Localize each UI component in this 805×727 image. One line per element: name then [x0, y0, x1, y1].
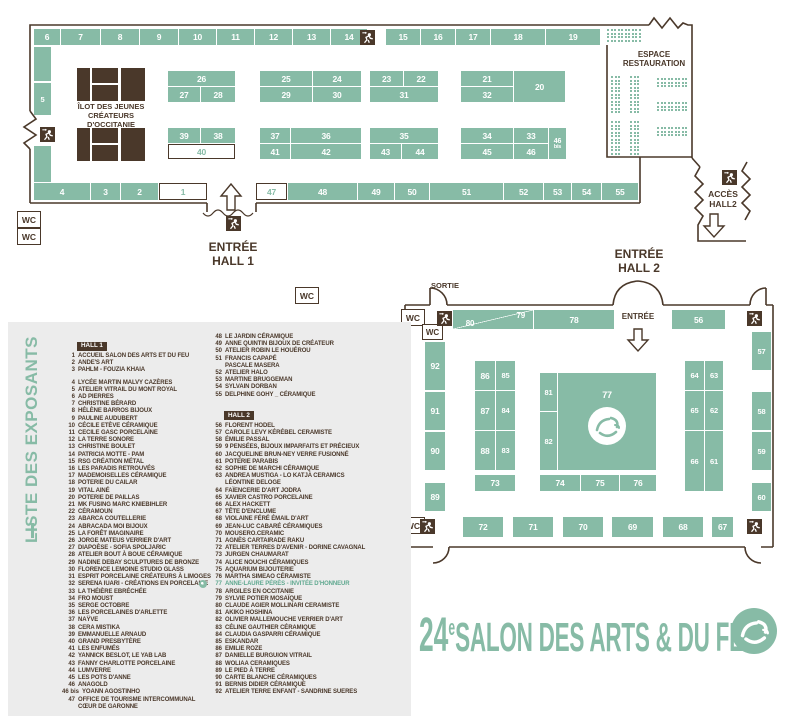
exhibitor-number: 38: [62, 625, 75, 632]
exhibitor-number: 59: [209, 444, 222, 451]
exhibitor-item-82: 82OLIVIER MALLEMOUCHE VERRIER D'ART: [209, 617, 409, 624]
exhibitor-number: 24: [62, 524, 75, 531]
edition-number: 24: [419, 609, 448, 662]
booth-33: 33: [514, 128, 548, 143]
booth-49: 49: [358, 183, 394, 200]
exhibitor-item: LÉONTINE DELOGE: [209, 480, 409, 487]
exhibitor-item-10: 10CÉCILE ETÈVE CÉRAMIQUE: [62, 423, 208, 430]
booth-18: 18: [491, 29, 545, 45]
booth-75: 75: [581, 475, 619, 491]
booth-42: 42: [291, 144, 361, 159]
exhibitor-name: ABARCA COUTELLERIE: [78, 516, 146, 523]
exhibitor-item-52: 52ATELIER HALO: [209, 370, 409, 377]
booth-47: 47: [256, 183, 287, 200]
exhibitor-name: YOANN AGOSTINHO: [82, 689, 140, 696]
exhibitor-number: 37: [62, 617, 75, 624]
exhibitor-number: 1: [62, 353, 75, 360]
exhibitor-name: ANDE'S ART: [78, 360, 113, 367]
exhibitor-number: 90: [209, 675, 222, 682]
exhibitor-number: [209, 363, 222, 370]
exhibitor-item-18: 18POTERIE DU CAILAR: [62, 480, 208, 487]
exhibitor-number: 3: [62, 367, 75, 374]
exhibitor-item-55: 55DELPHINE GOHY _ CÉRAMIQUE: [209, 392, 409, 399]
exhibitor-item-19: 19VITAL AINÉ: [62, 488, 208, 495]
exhibitor-name: EMILIE ROZE: [225, 646, 262, 653]
exhibitor-number: 28: [62, 552, 75, 559]
exhibitor-name: ATELIER TERRES D'AVENIR - DORINE CAVAGNA…: [225, 545, 365, 552]
exhibitor-number: 92: [209, 689, 222, 696]
exhibitor-item-9: 9PAULINE AUDUBERT: [62, 416, 208, 423]
exhibitor-name: LE PIED À TERRE: [225, 668, 275, 675]
exhibitor-item-87: 87DANIELLE BURGUION VITRAIL: [209, 653, 409, 660]
booth-66: 66: [685, 431, 704, 491]
exhibitor-item-12: 12LA TERRE SONORE: [62, 437, 208, 444]
exhibitor-item-23: 23ABARCA COUTELLERIE: [62, 516, 208, 523]
exhibitor-list-col1: HALL 11ACCUEIL SALON DES ARTS ET DU FEU2…: [62, 334, 208, 711]
exhibitor-name: ABRACADA MOI BIJOUX: [78, 524, 148, 531]
exhibitor-item-73: 73JURGEN CHAUMARAT: [209, 552, 409, 559]
booth-80-79: 8079: [453, 310, 533, 329]
booth-81: 81: [540, 373, 557, 411]
exhibitor-item-56: 56FLORENT HODEL: [209, 423, 409, 430]
exhibitor-number: 62: [209, 466, 222, 473]
emergency-exit-icon: [226, 216, 241, 231]
exhibitor-item-78: 78ARGILES EN OCCITANIE: [209, 589, 409, 596]
exhibitor-item-41: 41LES ENFUMÉS: [62, 646, 208, 653]
booth-56: 56: [672, 310, 725, 329]
booth-52: 52: [504, 183, 543, 200]
hall-header: HALL 1: [77, 342, 107, 351]
exhibitor-number: 53: [209, 377, 222, 384]
booth-92: 92: [425, 342, 445, 390]
exhibitor-name: POTERIE DU CAILAR: [78, 480, 137, 487]
exhibitor-name: CÉRAMOUN: [78, 509, 113, 516]
exhibitor-number: 30: [62, 567, 75, 574]
exhibitor-name: LA FORÊT IMAGINAIRE: [78, 531, 144, 538]
exhibitor-item-46bis: 46 bisYOANN AGOSTINHO: [62, 689, 208, 696]
event-title-text: SALON DES ARTS & DU FEU: [455, 614, 760, 660]
exhibitor-item-29: 29NADINE DEBAY SCULPTURES DE BRONZE: [62, 560, 208, 567]
booth-60: 60: [752, 483, 771, 511]
exhibitor-item-5: 5ATELIER VITRAIL DU MONT ROYAL: [62, 387, 208, 394]
booth-12: 12: [255, 29, 292, 45]
exhibitor-item-86: 86EMILIE ROZE: [209, 646, 409, 653]
exhibitor-name: AGNÈS CARTAIRADE RAKU: [225, 538, 304, 545]
booth-21: 21: [461, 71, 513, 86]
booth-82: 82: [540, 412, 557, 470]
exhibitor-number: 2: [62, 360, 75, 367]
booth-74: 74: [540, 475, 580, 491]
guest-of-honor-logo-icon: [587, 406, 627, 446]
exhibitor-item-17: 17MADEMOISELLES CÉRAMIQUE: [62, 473, 208, 480]
exhibitor-number: 76: [209, 574, 222, 581]
exhibitor-item-91: 91BERNIS DIDIER CÉRAMIQUE: [209, 682, 409, 689]
exhibitor-name: OFFICE DE TOURISME INTERCOMMUNAL: [78, 697, 195, 704]
exhibitor-name: FANNY CHARLOTTE PORCELAINE: [78, 661, 175, 668]
exhibitor-name: ESKANDAR: [225, 639, 258, 646]
exhibitor-name: CŒUR DE GARONNE: [78, 704, 138, 711]
exhibitor-name: CHRISTINE BOULET: [78, 444, 135, 451]
booth-3: 3: [91, 183, 120, 200]
emergency-exit-icon: [722, 170, 737, 185]
exhibitor-item-33: 33LA THÉIÈRE EBRÉCHÉE: [62, 589, 208, 596]
booth-85: 85: [496, 361, 515, 390]
exhibitor-item-59: 599 PENSÉES, BIJOUX IMPARFAITS ET PRÉCIE…: [209, 444, 409, 451]
exhibitor-name: PAHLM - FOUZIA KHAIA: [78, 367, 145, 374]
exhibitor-item-84: 84CLAUDIA GASPARRI CÉRAMIQUE: [209, 632, 409, 639]
booth-71: 71: [513, 517, 553, 537]
booth-10: 10: [179, 29, 216, 45]
exhibitor-number: 5: [62, 387, 75, 394]
exhibitor-item-14: 14PATRICIA MOTTE - PAM: [62, 452, 208, 459]
emergency-exit-icon: [420, 519, 435, 534]
salon-logo-icon: [731, 608, 777, 654]
exhibitor-number: 42: [62, 653, 75, 660]
exhibitor-name: ATELIER ROBIN LE HOUÉROU: [225, 348, 311, 355]
exhibitor-item-13: 13CHRISTINE BOULET: [62, 444, 208, 451]
exhibitor-item-50: 50ATELIER ROBIN LE HOUÉROU: [209, 348, 409, 355]
exhibitor-item-24: 24ABRACADA MOI BIJOUX: [62, 524, 208, 531]
booth-29: 29: [260, 87, 312, 102]
emergency-exit-icon: [360, 30, 375, 45]
exhibitor-name: SOPHIE DE MARCHI CÉRAMIQUE: [225, 466, 319, 473]
exhibitor-number: 41: [62, 646, 75, 653]
wc-sign: WC: [17, 211, 41, 228]
exhibitor-name: CÉLINE GAUTHIER CÉRAMIQUE: [225, 625, 316, 632]
booth-label: 79: [517, 311, 526, 320]
exhibitor-number: 35: [62, 603, 75, 610]
exhibitor-item-28: 28ATELIER BOUT À BOUE CÉRAMIQUE: [62, 552, 208, 559]
exhibitor-name: CLAUDIA GASPARRI CÉRAMIQUE: [225, 632, 320, 639]
booth-87: 87: [475, 391, 495, 430]
exhibitor-number: 33: [62, 589, 75, 596]
exhibitor-number: 66: [209, 502, 222, 509]
exhibitor-number: 81: [209, 610, 222, 617]
exhibitor-item-89: 89LE PIED À TERRE: [209, 668, 409, 675]
exhibitor-name: CERA MISTIKA: [78, 625, 120, 632]
booth-1: 1: [159, 183, 207, 200]
exhibitor-number: 68: [209, 516, 222, 523]
exhibitor-name: SYLVIE POTIER MOSAÏQUE: [225, 596, 302, 603]
exhibitor-item-92: 92ATELIER TERRE ENFANT - SANDRINE SUERES: [209, 689, 409, 696]
exhibitor-name: ATELIER BOUT À BOUE CÉRAMIQUE: [78, 552, 182, 559]
exhibitor-number: 55: [209, 392, 222, 399]
booth-30: 30: [313, 87, 361, 102]
exhibitor-name: PAULINE AUDUBERT: [78, 416, 137, 423]
wc-sign: WC: [17, 228, 41, 245]
exhibitor-number: 27: [62, 545, 75, 552]
exhibitor-item-25: 25LA FORÊT IMAGINAIRE: [62, 531, 208, 538]
booth-48: 48: [288, 183, 357, 200]
exhibitor-number: 7: [62, 401, 75, 408]
booth-70: 70: [563, 517, 603, 537]
exhibitor-name: ARGILES EN OCCITANIE: [225, 589, 294, 596]
exhibitor-item-22: 22CÉRAMOUN: [62, 509, 208, 516]
exhibitor-name: FAÏENCERIE D'ART JODRA: [225, 488, 301, 495]
exhibitor-item-69: 69JEAN-LUC CABARÉ CÉRAMIQUES: [209, 524, 409, 531]
booth-68: 68: [663, 517, 703, 537]
exhibitor-item-83: 83CÉLINE GAUTHIER CÉRAMIQUE: [209, 625, 409, 632]
exhibitor-number: 17: [62, 473, 75, 480]
exhibitor-number: 32: [62, 581, 75, 588]
exhibitor-number: 46 bis: [62, 689, 79, 696]
booth-50: 50: [395, 183, 429, 200]
exhibitor-number: 48: [209, 334, 222, 341]
exhibitor-item-60: 60JACQUELINE BRUN-NEY VERRE FUSIONNÉ: [209, 452, 409, 459]
exhibitor-number: 89: [209, 668, 222, 675]
exhibitor-name: ATELIER TERRE ENFANT - SANDRINE SUERES: [225, 689, 357, 696]
exhibitor-item-71: 71AGNÈS CARTAIRADE RAKU: [209, 538, 409, 545]
exhibitor-item-11: 11CECILE GASC PORCELAINE: [62, 430, 208, 437]
exhibitor-item-81: 81AKIKO HOSHINA: [209, 610, 409, 617]
exhibitor-number: 69: [209, 524, 222, 531]
hall-header: HALL 2: [224, 411, 254, 420]
booth-32: 32: [461, 87, 513, 102]
entree-hall1-label: ENTRÉEHALL 1: [183, 240, 283, 268]
exhibitor-name: NAŸVE: [78, 617, 98, 624]
exhibitor-name: DELPHINE GOHY _ CÉRAMIQUE: [225, 392, 315, 399]
exhibitor-name: LA THÉIÈRE EBRÉCHÉE: [78, 589, 147, 596]
booth-24: 24: [313, 71, 361, 86]
booth-26: 26: [168, 71, 235, 86]
booth-23: 23: [370, 71, 403, 86]
exhibitor-number: 43: [62, 661, 75, 668]
exhibitor-item-51: 51FRANCIS CAPAPÉ: [209, 356, 409, 363]
exhibitor-name: YANNICK BESLOT, LE YAB LAB: [78, 653, 166, 660]
exhibitor-name: CÉCILE ETÈVE CÉRAMIQUE: [78, 423, 157, 430]
exhibitor-number: 10: [62, 423, 75, 430]
exhibitor-item-53: 53MARTINE BRUGGEMAN: [209, 377, 409, 384]
exhibitor-number: 44: [62, 668, 75, 675]
entree-inner-label: ENTRÉE: [616, 312, 660, 321]
emergency-exit-icon: [40, 127, 55, 142]
exhibitor-number: 61: [209, 459, 222, 466]
exhibitor-item-72: 72ATELIER TERRES D'AVENIR - DORINE CAVAG…: [209, 545, 409, 552]
exhibitor-name: AQUARIUM BIJOUTERIE: [225, 567, 294, 574]
booth-88: 88: [475, 431, 495, 470]
booth-16: 16: [421, 29, 455, 45]
exhibitor-item-37: 37NAŸVE: [62, 617, 208, 624]
edition-suffix: e: [448, 615, 455, 640]
exhibitor-item-43: 43FANNY CHARLOTTE PORCELAINE: [62, 661, 208, 668]
exhibitor-name: JURGEN CHAUMARAT: [225, 552, 289, 559]
espace-restauration-label: ESPACERESTAURATION: [610, 50, 698, 68]
exhibitor-item-88: 88WOLIAA CERAMIQUES: [209, 661, 409, 668]
exhibitor-name: ACCUEIL SALON DES ARTS ET DU FEU: [78, 353, 189, 360]
exhibitor-name: SERGE OCTOBRE: [78, 603, 129, 610]
booth-78: 78: [534, 310, 614, 329]
booth-8: 8: [101, 29, 139, 45]
exhibitor-number: 74: [209, 560, 222, 567]
exhibitor-name: FLORENT HODEL: [225, 423, 275, 430]
exhibitor-item-39: 39EMMANUELLE ARNAUD: [62, 632, 208, 639]
booth-89: 89: [425, 483, 445, 511]
exhibitor-number: 31: [62, 574, 75, 581]
exhibitor-name: MOUSERO.CERAMIC: [225, 531, 284, 538]
booth-22: 22: [404, 71, 438, 86]
exhibitor-number: 23: [62, 516, 75, 523]
exhibitor-item-34: 34FRO MOUST: [62, 596, 208, 603]
exhibitor-item-74: 74ALICE NOUCHI CÉRAMIQUES: [209, 560, 409, 567]
acces-hall2-label: ACCÈSHALL2: [698, 189, 748, 209]
booth-27: 27: [168, 87, 200, 102]
booth-55: 55: [602, 183, 638, 200]
exhibitor-number: 52: [209, 370, 222, 377]
exhibitor-name: MADEMOISELLES CÉRAMIQUE: [78, 473, 166, 480]
exhibitor-item-2: 2ANDE'S ART: [62, 360, 208, 367]
booth-45: 45: [461, 144, 513, 159]
booth-91: 91: [425, 392, 445, 430]
exhibitor-item-45: 45LES POTS D'ANNE: [62, 675, 208, 682]
booth-51: 51: [430, 183, 503, 200]
emergency-exit-icon: [747, 519, 762, 534]
exhibitor-name: NADINE DEBAY SCULPTURES DE BRONZE: [78, 560, 199, 567]
exhibitor-number: 40: [62, 639, 75, 646]
booth-5: 5: [34, 83, 51, 115]
booth-84: 84: [496, 391, 515, 430]
exhibitor-item-1: 1ACCUEIL SALON DES ARTS ET DU FEU: [62, 353, 208, 360]
exhibitor-name: HÉLÈNE BARROS BIJOUX: [78, 408, 152, 415]
booth-38: 38: [201, 128, 235, 143]
exhibitor-number: 4: [62, 380, 75, 387]
exhibitor-number: 56: [209, 423, 222, 430]
exhibitor-number: 79: [209, 596, 222, 603]
booth-90: 90: [425, 432, 445, 470]
exhibitor-number: 91: [209, 682, 222, 689]
exhibitor-name: WOLIAA CERAMIQUES: [225, 661, 290, 668]
list-title-dash: [31, 523, 34, 538]
exhibitor-number: 16: [62, 466, 75, 473]
exhibitor-item-65: 65XAVIER CASTRO PORCELAINE: [209, 495, 409, 502]
booth-65: 65: [685, 391, 704, 430]
emergency-exit-icon: [747, 311, 762, 326]
booth-59: 59: [752, 432, 771, 470]
exhibitor-number: 11: [62, 430, 75, 437]
exhibitor-number: 72: [209, 545, 222, 552]
booth-43: 43: [370, 144, 401, 159]
exhibitor-number: 34: [62, 596, 75, 603]
exhibitor-name: PASCALE MASERA: [225, 363, 280, 370]
exhibitor-number: 19: [62, 488, 75, 495]
exhibitor-number: 8: [62, 408, 75, 415]
sortie-label: SORTIE: [425, 281, 465, 290]
exhibitor-name: VITAL AINÉ: [78, 488, 110, 495]
exhibitor-item: PASCALE MASERA: [209, 363, 409, 370]
exhibitor-name: LES ENFUMÉS: [78, 646, 120, 653]
exhibitor-item-68: 68VIOLAINE FÉRÉ ÉMAIL D'ART: [209, 516, 409, 523]
booth-46-bis: 46bis: [549, 128, 566, 159]
exhibitor-number: 6: [62, 394, 75, 401]
booth-77: 77: [558, 373, 656, 470]
exhibitor-item-44: 44LUMVERRE: [62, 668, 208, 675]
exhibitor-number: 18: [62, 480, 75, 487]
exhibitor-item-46: 46ANAGOLD: [62, 682, 208, 689]
exhibitor-name: POTERIE PARABIS: [225, 459, 278, 466]
booth-9: 9: [140, 29, 178, 45]
booth-35: 35: [370, 128, 438, 143]
event-title: 24eSALON DES ARTS & DU FEU: [419, 613, 760, 670]
exhibitor-name: LUMVERRE: [78, 668, 111, 675]
exhibitor-number: 75: [209, 567, 222, 574]
booth-54: 54: [572, 183, 601, 200]
booth-62: 62: [705, 391, 723, 430]
booth-2: 2: [121, 183, 158, 200]
exhibitor-item-79: 79SYLVIE POTIER MOSAÏQUE: [209, 596, 409, 603]
exhibitor-number: 50: [209, 348, 222, 355]
booth-6: 6: [34, 29, 60, 45]
exhibitor-name: SERENA IUARI - CRÉATIONS EN PORCELAINE: [78, 581, 208, 588]
exhibitor-name: ATELIER VITRAIL DU MONT ROYAL: [78, 387, 177, 394]
exhibitor-item-80: 80CLAUDE AGIER MOLLINARI CERAMISTE: [209, 603, 409, 610]
booth-28: 28: [201, 87, 235, 102]
exhibitor-number: 14: [62, 452, 75, 459]
exhibitor-name: LYCÉE MARTIN MALVY CAZÈRES: [78, 380, 172, 387]
exhibitor-name: AKIKO HOSHINA: [225, 610, 272, 617]
exhibitor-name: FLORENCE LEMOINE STUDIO GLASS: [78, 567, 184, 574]
booth-17: 17: [456, 29, 490, 45]
exhibitor-item-8: 8HÉLÈNE BARROS BIJOUX: [62, 408, 208, 415]
exhibitor-name: CECILE GASC PORCELAINE: [78, 430, 158, 437]
exhibitor-number: 22: [62, 509, 75, 516]
booth-44: 44: [402, 144, 438, 159]
booth-58: 58: [752, 392, 771, 430]
exhibitor-name: BERNIS DIDIER CÉRAMIQUE: [225, 682, 306, 689]
exhibitor-number: 86: [209, 646, 222, 653]
booth-67: 67: [712, 517, 733, 537]
exhibitor-name: JEAN-LUC CABARÉ CÉRAMIQUES: [225, 524, 322, 531]
booth-57: 57: [752, 332, 771, 370]
exhibitor-number: 67: [209, 509, 222, 516]
booth-36: 36: [291, 128, 361, 143]
exhibitor-number: 21: [62, 502, 75, 509]
exhibitor-name: 9 PENSÉES, BIJOUX IMPARFAITS ET PRÉCIEUX: [225, 444, 359, 451]
exhibitor-number: 20: [62, 495, 75, 502]
exhibitor-number: 13: [62, 444, 75, 451]
entree-hall2-label: ENTRÉEHALL 2: [589, 247, 689, 275]
exhibitor-number: 87: [209, 653, 222, 660]
booth-wall-h1: [34, 47, 51, 81]
exhibitor-item-75: 75AQUARIUM BIJOUTERIE: [209, 567, 409, 574]
booth-wall-h1: [34, 146, 51, 182]
exhibitor-name: JACQUELINE BRUN-NEY VERRE FUSIONNÉ: [225, 452, 349, 459]
exhibitor-number: 47: [62, 697, 75, 704]
booth-64: 64: [685, 361, 704, 390]
exhibitor-number: 39: [62, 632, 75, 639]
exhibitor-number: 63: [209, 473, 222, 480]
booth-7: 7: [61, 29, 100, 45]
booth-41: 41: [260, 144, 290, 159]
exhibitor-name: CLAUDE AGIER MOLLINARI CERAMISTE: [225, 603, 339, 610]
exhibitor-number: 26: [62, 538, 75, 545]
booth-19: 19: [546, 29, 600, 45]
exhibitor-name: XAVIER CASTRO PORCELAINE: [225, 495, 313, 502]
exhibitor-item-38: 38CERA MISTIKA: [62, 625, 208, 632]
booth-83: 83: [496, 431, 515, 470]
booth-63: 63: [705, 361, 723, 390]
exhibitor-number: [62, 704, 75, 711]
booth-4: 4: [34, 183, 90, 200]
exhibitor-number: 54: [209, 384, 222, 391]
booth-39: 39: [168, 128, 200, 143]
exhibitor-number: 57: [209, 430, 222, 437]
exhibitor-name: FRANCIS CAPAPÉ: [225, 356, 277, 363]
exhibitor-name: PATRICIA MOTTE - PAM: [78, 452, 144, 459]
exhibitor-number: 46: [62, 682, 75, 689]
exhibitor-number: 88: [209, 661, 222, 668]
exhibitor-number: [209, 480, 222, 487]
exhibitor-number: 9: [62, 416, 75, 423]
exhibitor-number: 78: [209, 589, 222, 596]
